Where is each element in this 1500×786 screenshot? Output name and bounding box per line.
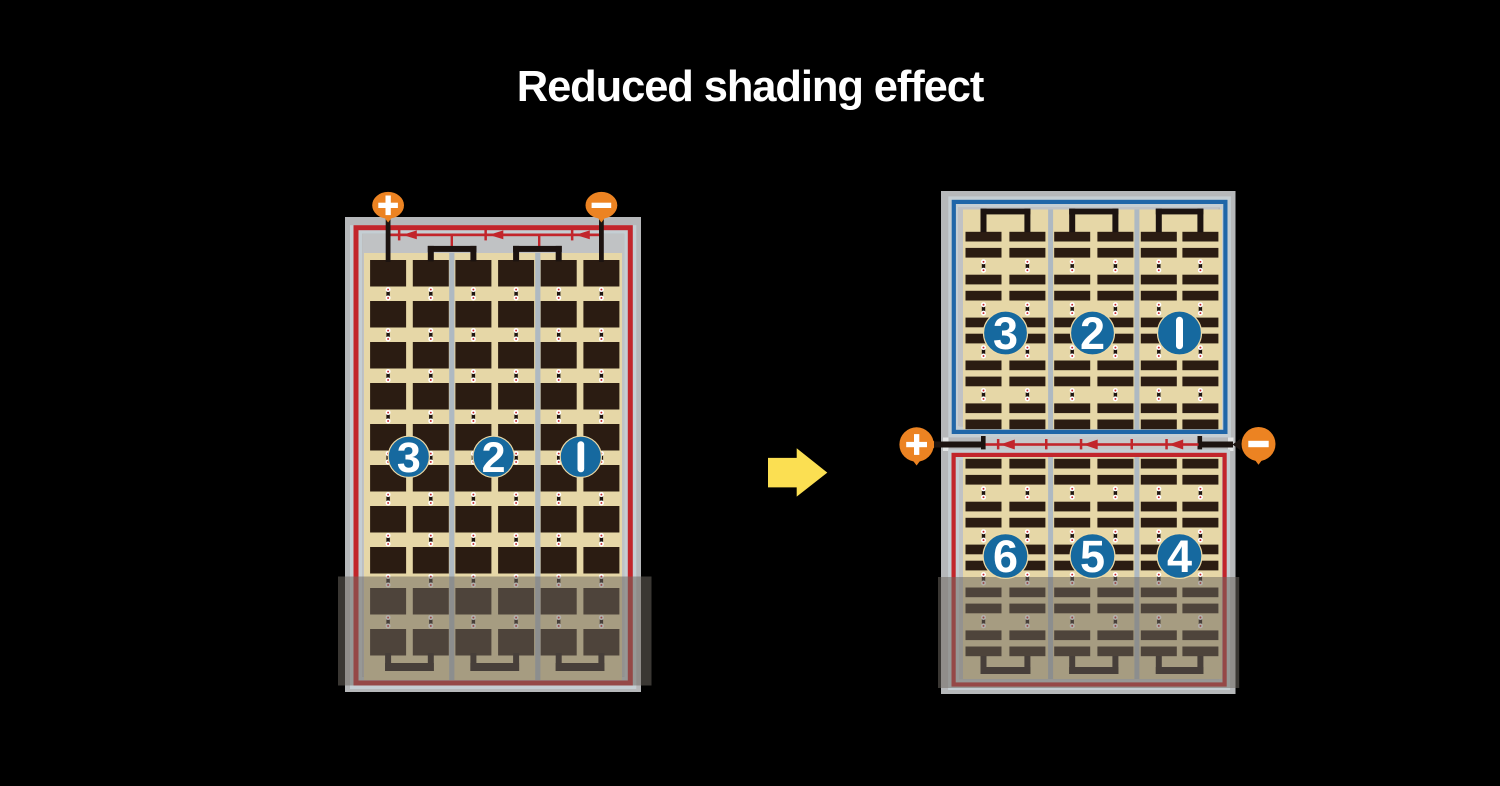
svg-text:3: 3 (993, 308, 1018, 359)
svg-text:4: 4 (1167, 531, 1192, 582)
svg-text:2: 2 (482, 434, 506, 482)
svg-text:Reduced shading effect: Reduced shading effect (517, 63, 984, 111)
svg-text:3: 3 (397, 434, 421, 482)
svg-text:5: 5 (1080, 531, 1105, 582)
svg-text:6: 6 (993, 531, 1018, 582)
svg-text:2: 2 (1080, 308, 1105, 359)
